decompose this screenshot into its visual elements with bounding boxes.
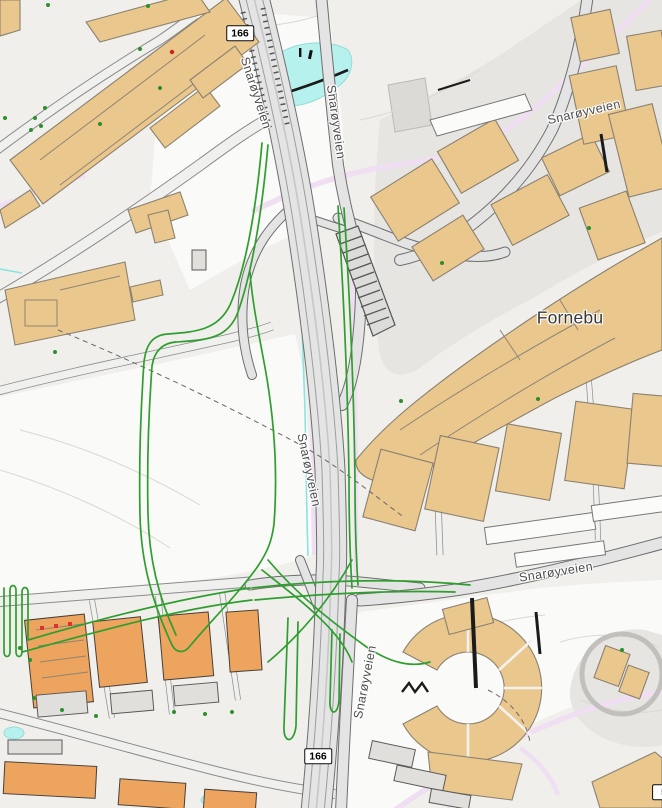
place-label-fornebu: Fornebu — [537, 308, 604, 329]
route-badge-166-bottom: 166 — [304, 748, 332, 764]
route-badge-166-top: 166 — [226, 25, 254, 41]
map-viewport[interactable]: Snarøyveien Snarøyveien Snarøyveien Snar… — [0, 0, 662, 808]
poi-red-dot — [170, 50, 174, 54]
route-badge-partial-corner: 5 — [652, 784, 662, 800]
buildings-residential — [3, 610, 262, 808]
